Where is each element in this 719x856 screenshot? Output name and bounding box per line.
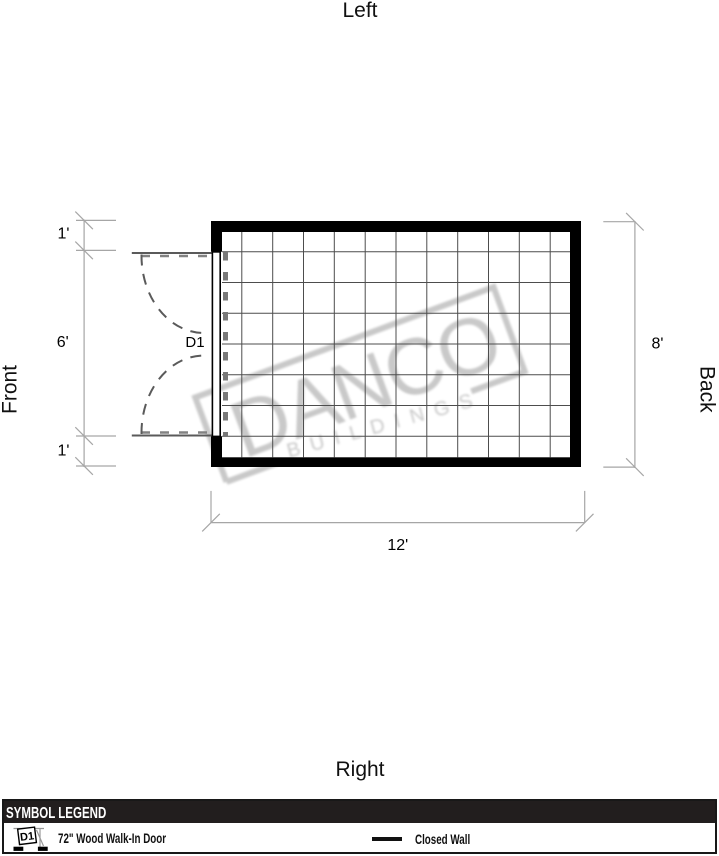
svg-text:Front: Front	[0, 365, 22, 414]
svg-text:Right: Right	[335, 758, 384, 781]
svg-text:Back: Back	[696, 366, 719, 413]
svg-text:6': 6'	[57, 334, 69, 351]
svg-text:D1: D1	[185, 334, 204, 351]
svg-text:12': 12'	[387, 537, 408, 554]
svg-text:1': 1'	[58, 226, 70, 243]
svg-text:8': 8'	[652, 336, 664, 353]
svg-text:D1: D1	[19, 830, 34, 844]
svg-text:1': 1'	[58, 443, 70, 460]
svg-text:Left: Left	[342, 0, 377, 22]
